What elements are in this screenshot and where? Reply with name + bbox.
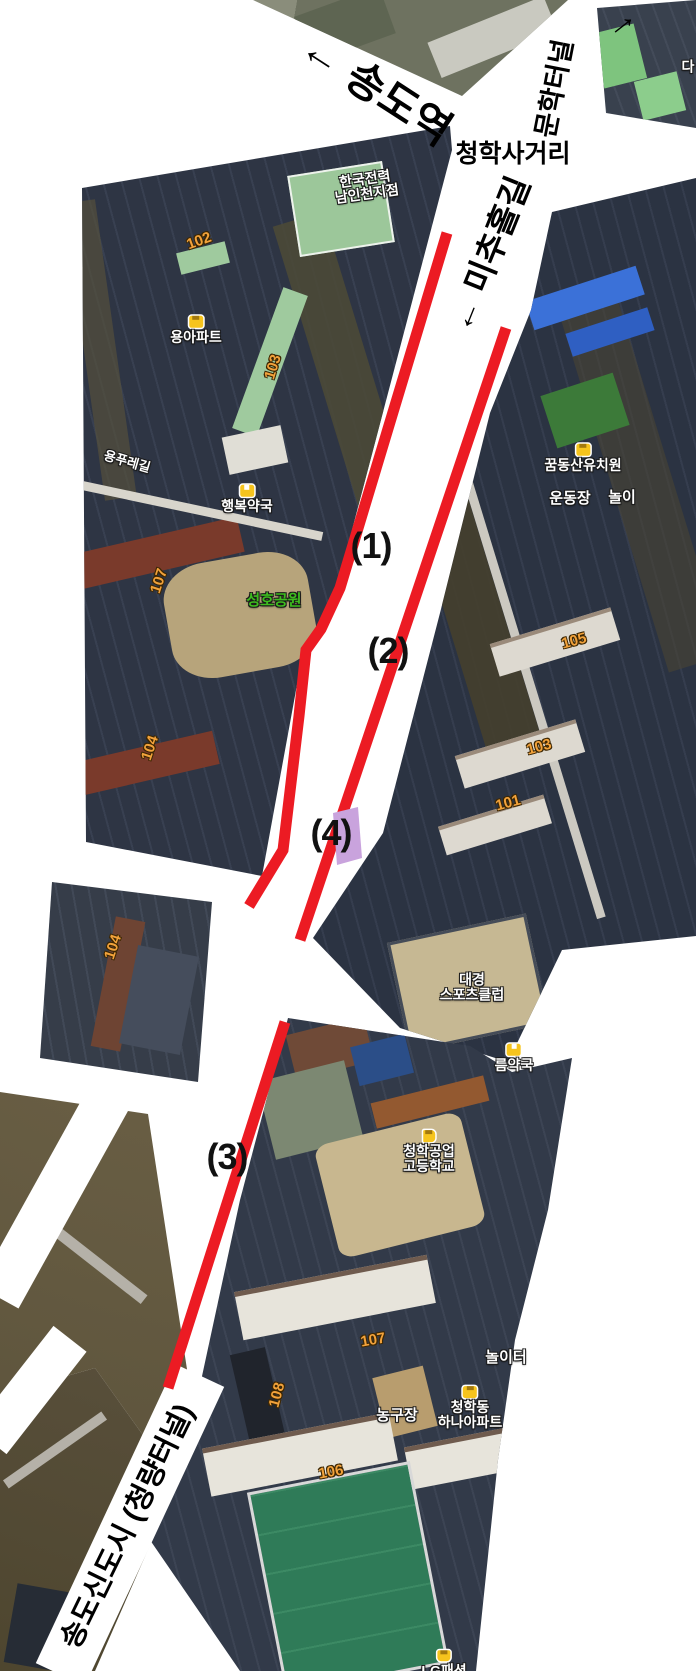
- place-label-line: LG패션: [421, 1663, 466, 1671]
- place-label-line: 다: [682, 59, 695, 74]
- place-label-line: 고등학교: [403, 1160, 455, 1175]
- place-label-kkumdongsan-kindergarten: 꿈동산유치원: [544, 441, 621, 473]
- building-number: 104: [101, 932, 125, 961]
- place-label-playground2: 놀이터: [485, 1350, 526, 1367]
- building-number: 108: [266, 1381, 289, 1410]
- place-label-pure-gil-road: 용푸레길: [102, 449, 152, 476]
- place-label-yong-apartment: 용아파트: [170, 313, 222, 345]
- labels-layer: ← 송도역문학터널→청학사거리← 미추홀길송도신도시 (청량터널)(1)(2)(…: [0, 0, 696, 1671]
- place-label-line: 놀이터: [485, 1350, 526, 1367]
- building-icon: [463, 1386, 477, 1398]
- pharmacy-icon: [240, 485, 254, 497]
- place-label-line: 성호공원: [246, 593, 301, 610]
- building-number: 106: [317, 1461, 345, 1482]
- place-label-line: 름약국: [495, 1058, 534, 1073]
- pharmacy-icon: [507, 1044, 521, 1056]
- place-label-line: 용푸레길: [102, 449, 152, 476]
- place-label-lg-fashion: LG패션: [421, 1647, 466, 1671]
- route-number-4: (4): [311, 812, 352, 854]
- building-number: 103: [261, 353, 285, 382]
- building-number: 107: [359, 1329, 387, 1350]
- place-label-line: 스포츠클럽: [440, 988, 504, 1003]
- place-label-line: 꿈동산유치원: [544, 458, 621, 473]
- building-number: 103: [525, 736, 554, 759]
- place-label-cheonghak-technical-high-school: 청학공업고등학교: [403, 1127, 455, 1175]
- road-label-songdo-station: ← 송도역: [290, 14, 465, 158]
- building-number: 104: [138, 733, 162, 762]
- building-number: 102: [184, 229, 213, 254]
- route-number-3: (3): [207, 1136, 248, 1178]
- place-label-sports-field: 운동장: [549, 491, 590, 508]
- building-number: 105: [560, 630, 589, 653]
- place-label-line: 놀이: [608, 490, 636, 507]
- place-label-line: 운동장: [549, 491, 590, 508]
- place-label-playground-clipped: 놀이: [608, 490, 636, 507]
- place-label-da-clipped: 다: [682, 59, 695, 74]
- road-label-michuhol-gil: ← 미추홀길: [434, 168, 540, 338]
- bag-icon: [437, 1650, 450, 1661]
- road-label-cheonghak-intersection: 청학사거리: [455, 134, 570, 170]
- place-label-basketball-court: 농구장: [376, 1408, 417, 1425]
- building-icon: [189, 316, 203, 328]
- person-icon: [576, 444, 590, 456]
- building-number: 107: [147, 566, 171, 595]
- place-label-line: 행복약국: [221, 499, 273, 514]
- road-label-munhak-tunnel: 문학터널: [523, 36, 580, 141]
- building-number: 101: [494, 792, 523, 815]
- road-label-songdo-newtown-tunnel: 송도신도시 (청량터널): [47, 1396, 202, 1655]
- route-number-2: (2): [368, 630, 409, 672]
- place-label-haengbok-pharmacy: 행복약국: [221, 482, 273, 514]
- place-label-seongho-park: 성호공원: [246, 593, 301, 610]
- place-label-kepco-nam-incheon: 한국전력남인천지점: [332, 167, 400, 206]
- map-canvas[interactable]: ← 송도역문학터널→청학사거리← 미추홀길송도신도시 (청량터널)(1)(2)(…: [0, 0, 696, 1671]
- place-label-cheonghak-hana-apartment: 청학동하나아파트: [438, 1383, 502, 1431]
- place-label-line: 용아파트: [170, 330, 222, 345]
- route-number-1: (1): [351, 525, 392, 567]
- place-label-daekyung-sports-club: 대경스포츠클럽: [440, 973, 504, 1004]
- flag-icon: [423, 1130, 435, 1142]
- road-label-munhak-tunnel-arrow: →: [595, 0, 646, 48]
- place-label-pharmacy-clipped: 름약국: [495, 1041, 534, 1073]
- place-label-line: 농구장: [376, 1408, 417, 1425]
- place-label-line: 하나아파트: [438, 1416, 502, 1431]
